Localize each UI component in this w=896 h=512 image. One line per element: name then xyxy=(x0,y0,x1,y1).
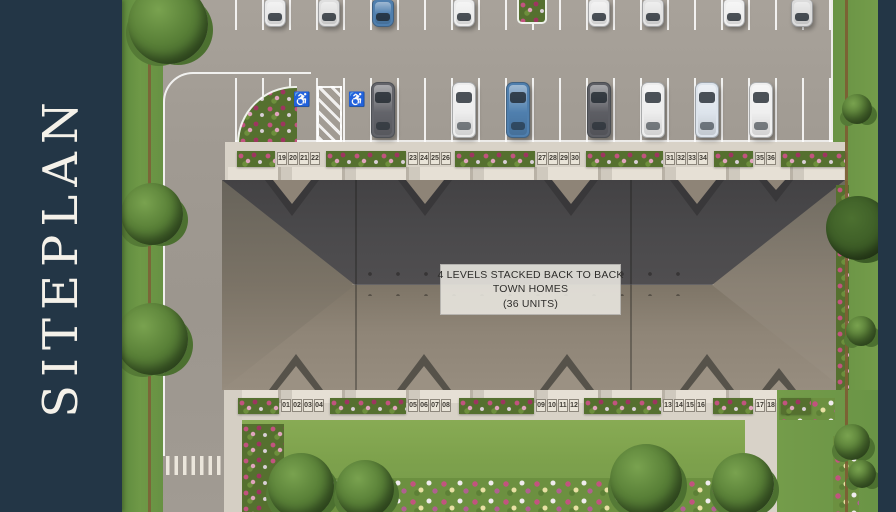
tree xyxy=(842,94,872,124)
unit-number: 25 xyxy=(430,152,440,165)
page-title: SITEPLAN xyxy=(33,94,89,418)
unit-number: 02 xyxy=(292,399,302,412)
unit-number: 07 xyxy=(430,399,440,412)
car-rear-window xyxy=(376,122,390,130)
unit-number-plaque: 27282930 xyxy=(537,152,580,165)
flower-planter xyxy=(459,398,534,414)
unit-number: 18 xyxy=(766,399,776,412)
roof-gable xyxy=(397,354,451,390)
siteplan-page: ♿ ♿ 4 LEVELS STACKED BACK TO BACK TOWN H… xyxy=(0,0,896,512)
unit-number: 31 xyxy=(665,152,675,165)
unit-number: 32 xyxy=(676,152,686,165)
crosswalk xyxy=(166,456,224,475)
unit-number: 35 xyxy=(755,152,765,165)
unit-number-plaque: 09101112 xyxy=(536,399,579,412)
car xyxy=(371,82,395,138)
flower-planter xyxy=(237,151,275,167)
unit-number: 28 xyxy=(548,152,558,165)
roof-gable xyxy=(680,354,734,390)
unit-number-plaque: 13141516 xyxy=(663,399,706,412)
roof-gable xyxy=(759,180,793,202)
roof-gable xyxy=(544,180,598,216)
car-rear-window xyxy=(457,122,471,130)
car-windshield xyxy=(457,13,471,21)
tree xyxy=(834,424,870,460)
tree xyxy=(846,316,876,346)
unit-number: 24 xyxy=(419,152,429,165)
car xyxy=(506,82,530,138)
car xyxy=(318,0,340,27)
flower-planter xyxy=(586,151,663,167)
car-windshield xyxy=(592,13,606,21)
roof-gable xyxy=(540,354,594,390)
building-label-line3: (36 UNITS) xyxy=(503,297,558,312)
unit-number: 19 xyxy=(277,152,287,165)
unit-number: 03 xyxy=(303,399,313,412)
flower-island xyxy=(517,0,547,24)
car-windshield xyxy=(646,13,660,21)
roof-gable xyxy=(269,354,323,390)
flower-planter xyxy=(330,398,406,414)
flower-planter xyxy=(713,398,753,414)
car-windshield xyxy=(322,13,336,21)
tree xyxy=(121,183,183,245)
car xyxy=(453,0,475,27)
car xyxy=(723,0,745,27)
unit-number: 04 xyxy=(314,399,324,412)
unit-number: 16 xyxy=(696,399,706,412)
car xyxy=(587,82,611,138)
building-section-seam xyxy=(355,180,357,390)
car xyxy=(791,0,813,27)
unit-number: 15 xyxy=(685,399,695,412)
car-rear-window xyxy=(592,122,606,130)
car-windshield xyxy=(510,92,526,103)
unit-number: 06 xyxy=(419,399,429,412)
unit-number-plaque: 31323334 xyxy=(665,152,708,165)
unit-number: 27 xyxy=(537,152,547,165)
unit-number: 29 xyxy=(559,152,569,165)
car xyxy=(641,82,665,138)
tree xyxy=(336,460,394,512)
car xyxy=(264,0,286,27)
flower-planter xyxy=(455,151,535,167)
car-windshield xyxy=(375,92,391,103)
siteplan-rendering: ♿ ♿ 4 LEVELS STACKED BACK TO BACK TOWN H… xyxy=(0,0,896,512)
car-windshield xyxy=(456,92,472,103)
unit-number: 01 xyxy=(281,399,291,412)
unit-number-plaque: 19202122 xyxy=(277,152,320,165)
unit-number-plaque: 23242526 xyxy=(408,152,451,165)
unit-number: 14 xyxy=(674,399,684,412)
roof-gable xyxy=(265,180,319,216)
unit-number: 33 xyxy=(687,152,697,165)
car-rear-window xyxy=(700,122,714,130)
car-windshield xyxy=(591,92,607,103)
car-windshield xyxy=(645,92,661,103)
car-rear-window xyxy=(646,122,660,130)
roof-gable xyxy=(762,368,796,390)
roof-gable xyxy=(398,180,452,216)
unit-number-plaque: 05060708 xyxy=(408,399,451,412)
unit-number-plaque: 3536 xyxy=(755,152,776,165)
accessible-aisle-hatching xyxy=(317,86,342,142)
flower-planter xyxy=(584,398,661,414)
flower-planter xyxy=(326,151,406,167)
car-rear-window xyxy=(754,122,768,130)
unit-number: 13 xyxy=(663,399,673,412)
accessible-parking-icon: ♿ xyxy=(293,92,309,106)
unit-number: 09 xyxy=(536,399,546,412)
car-windshield xyxy=(699,92,715,103)
roof-gable xyxy=(670,180,724,216)
unit-number: 08 xyxy=(441,399,451,412)
unit-number: 17 xyxy=(755,399,765,412)
flower-planter xyxy=(781,151,845,167)
car-windshield xyxy=(753,92,769,103)
tree xyxy=(268,453,334,512)
unit-number: 26 xyxy=(441,152,451,165)
car xyxy=(749,82,773,138)
car xyxy=(452,82,476,138)
parking-edge-line xyxy=(831,0,833,142)
left-grass-strip xyxy=(122,0,163,512)
unit-number: 11 xyxy=(558,399,568,412)
unit-number: 36 xyxy=(766,152,776,165)
sidebar: SITEPLAN xyxy=(0,0,122,512)
tree xyxy=(712,453,774,512)
flower-planter xyxy=(238,398,279,414)
unit-number: 23 xyxy=(408,152,418,165)
unit-number: 21 xyxy=(299,152,309,165)
car-windshield xyxy=(376,13,390,21)
building-label-line1: 4 LEVELS STACKED BACK TO BACK xyxy=(437,268,623,283)
unit-number-plaque: 1718 xyxy=(755,399,776,412)
tree xyxy=(848,460,876,488)
car xyxy=(642,0,664,27)
flower-planter xyxy=(714,151,753,167)
unit-number: 34 xyxy=(698,152,708,165)
tree xyxy=(610,444,682,512)
unit-number: 10 xyxy=(547,399,557,412)
tree xyxy=(116,303,188,375)
car xyxy=(695,82,719,138)
car-windshield xyxy=(727,13,741,21)
building-label-line2: TOWN HOMES xyxy=(493,282,568,297)
flower-planter xyxy=(781,398,811,414)
unit-number: 12 xyxy=(569,399,579,412)
car-rear-window xyxy=(511,122,525,130)
unit-number: 05 xyxy=(408,399,418,412)
unit-number-plaque: 01020304 xyxy=(281,399,324,412)
unit-number: 22 xyxy=(310,152,320,165)
unit-number: 20 xyxy=(288,152,298,165)
left-fence-line xyxy=(148,0,151,512)
upper-entry-porches xyxy=(228,167,844,181)
right-border-bar xyxy=(878,0,896,512)
car-windshield xyxy=(795,13,809,21)
car-windshield xyxy=(268,13,282,21)
car xyxy=(372,0,394,27)
accessible-parking-icon: ♿ xyxy=(348,92,364,106)
car xyxy=(588,0,610,27)
unit-number: 30 xyxy=(570,152,580,165)
building-label: 4 LEVELS STACKED BACK TO BACK TOWN HOMES… xyxy=(440,264,621,315)
